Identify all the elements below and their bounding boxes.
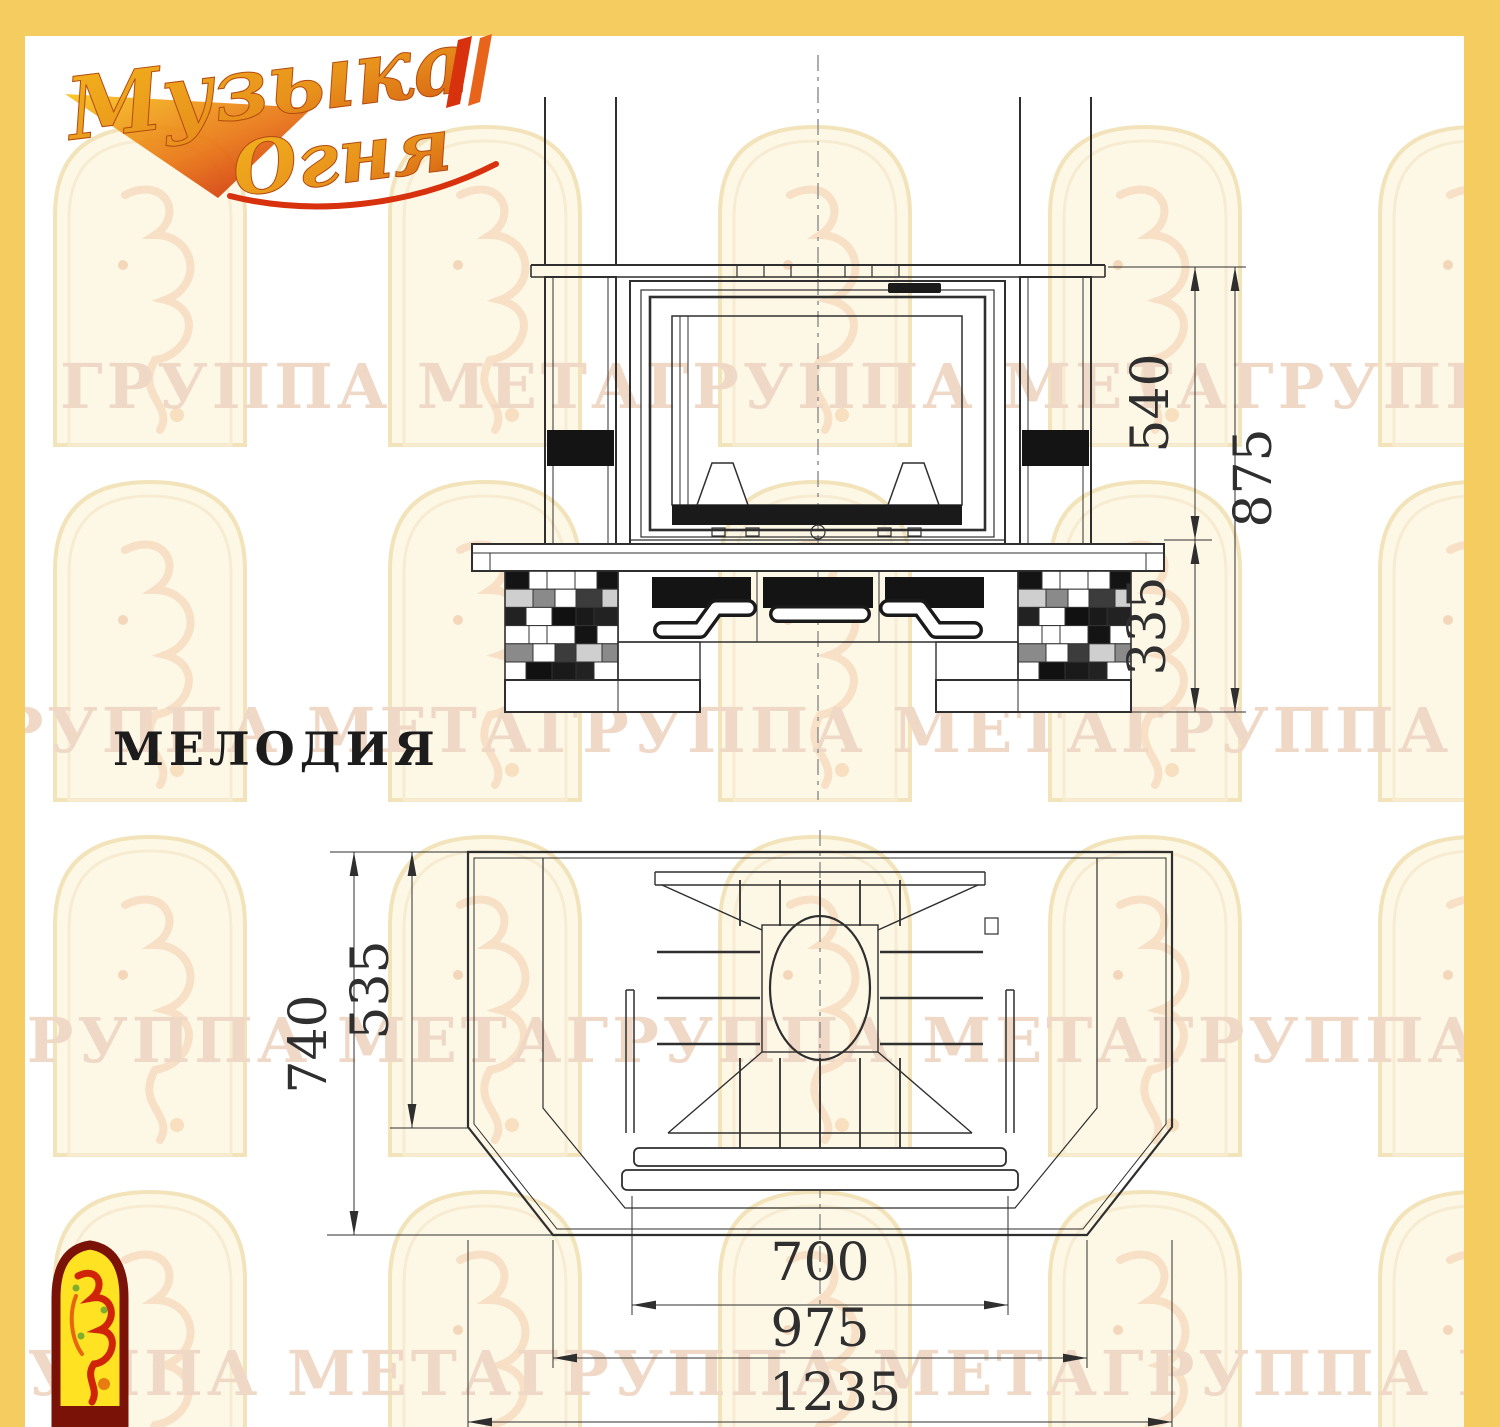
foot-right (936, 680, 1131, 712)
dimension-label-335: 335 (1118, 576, 1178, 675)
technical-drawing: 540 335 875 (0, 0, 1500, 1427)
brand-logo-art: Музыка Огня (20, 12, 540, 212)
base (505, 571, 1131, 712)
dimension-label-875: 875 (1224, 428, 1284, 527)
andiron-left (697, 463, 748, 505)
brick-pillar-left (505, 571, 618, 680)
plan-dimensions (327, 852, 1172, 1427)
plan-view-drawing (327, 830, 1172, 1427)
base-ornament (662, 608, 974, 630)
brick-pillar-right (1018, 571, 1131, 680)
dimension-label-740: 740 (279, 994, 339, 1093)
right-column (1020, 277, 1091, 545)
left-column (545, 277, 616, 545)
firebird-logo (48, 1236, 132, 1427)
frame-band-right (1464, 0, 1500, 1427)
foot-left (505, 680, 700, 712)
firebird-logo-art (48, 1236, 132, 1427)
frame-band-left (0, 0, 25, 1427)
model-title: МЕЛОДИЯ (113, 722, 440, 776)
dimension-label-535: 535 (341, 940, 401, 1039)
grate-bars-top (740, 880, 900, 926)
fender-bar-upper (634, 1148, 1006, 1166)
dimension-label-540: 540 (1121, 353, 1181, 452)
dimension-label-975: 975 (770, 1299, 869, 1359)
brand-logo: Музыка Огня (20, 12, 540, 212)
andiron-right (888, 463, 939, 505)
fender-bar-lower (622, 1170, 1018, 1190)
dimension-label-700: 700 (770, 1233, 869, 1293)
bench-shelf (472, 544, 1164, 571)
grate-bars-bottom (740, 1058, 900, 1148)
mantel-top-band (531, 265, 1105, 277)
dimension-label-1235: 1235 (769, 1363, 901, 1423)
door-brand-plate (888, 283, 941, 293)
page: ГРУППА МЕТАГРУППА МЕТАГРУППА МЕТА ГРУППА… (0, 0, 1500, 1427)
firebox-sill (672, 505, 962, 525)
